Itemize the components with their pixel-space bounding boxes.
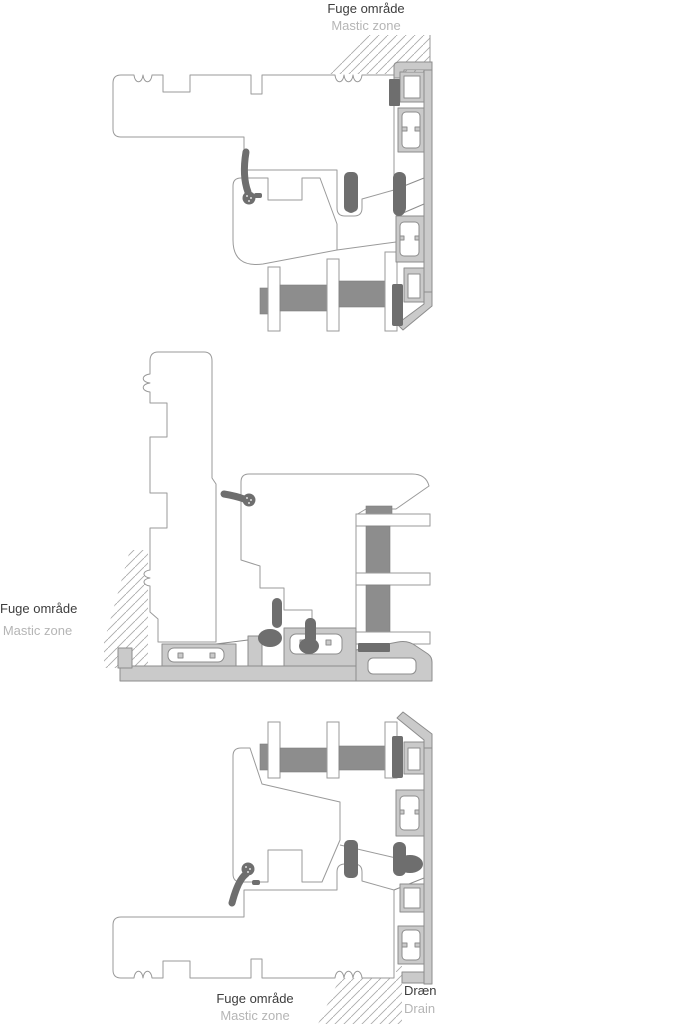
glazing-spacer xyxy=(280,285,327,311)
drain-label-da: Dræn xyxy=(404,983,437,998)
flipper-gasket xyxy=(224,494,244,499)
glazing-spacer xyxy=(280,748,327,772)
sash-wood-profile xyxy=(241,474,429,628)
hook-gasket xyxy=(272,598,282,628)
head-section-drawing xyxy=(113,35,432,331)
glass-gasket xyxy=(358,643,390,652)
glass-pane xyxy=(268,722,280,778)
glass-gasket xyxy=(392,284,403,326)
alu-cladding-face xyxy=(424,746,432,984)
glass-pane xyxy=(356,632,430,644)
glass-pane xyxy=(327,722,339,778)
sill-section-drawing xyxy=(113,712,432,1024)
flipper-gasket xyxy=(244,152,248,192)
glass-pane xyxy=(268,267,280,331)
alu-bottom-foot xyxy=(402,972,424,983)
glazing-tape xyxy=(366,506,392,514)
glass-gasket xyxy=(392,736,403,778)
bottom-mastic-label-en: Mastic zone xyxy=(195,1008,315,1023)
bottom-mastic-label-da: Fuge område xyxy=(195,991,315,1006)
drain-label-en: Drain xyxy=(404,1001,435,1016)
glazing-tape xyxy=(260,288,268,314)
left-mastic-label-en: Mastic zone xyxy=(0,623,75,638)
glass-pane xyxy=(327,259,339,331)
glazing-spacer xyxy=(366,526,390,573)
glazing-tape xyxy=(260,744,268,770)
jamb-section-drawing xyxy=(104,352,432,681)
cross-section-drawings xyxy=(0,0,697,1024)
glazing-spacer xyxy=(339,746,385,770)
glass-pane xyxy=(356,573,430,585)
left-mastic-label-da: Fuge område xyxy=(0,601,75,616)
top-mastic-label-en: Mastic zone xyxy=(306,18,426,33)
frame-gasket xyxy=(389,79,400,106)
alu-left-upstand xyxy=(118,648,132,668)
drawing-sheet: Fuge område Mastic zone Fuge område Mast… xyxy=(0,0,697,1024)
alu-cladding-face xyxy=(424,62,432,294)
glass-pane xyxy=(356,514,430,526)
glazing-spacer xyxy=(339,281,385,307)
frame-wood-profile xyxy=(143,352,216,642)
top-mastic-label-da: Fuge område xyxy=(306,1,426,16)
glazing-spacer xyxy=(366,585,390,632)
